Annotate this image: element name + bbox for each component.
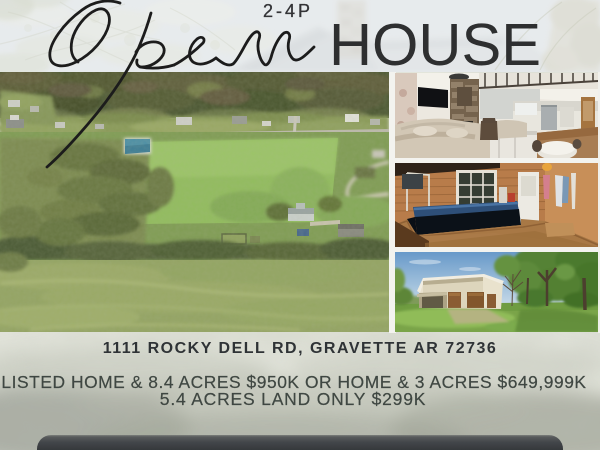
svg-text:HOUSE: HOUSE xyxy=(329,11,541,73)
